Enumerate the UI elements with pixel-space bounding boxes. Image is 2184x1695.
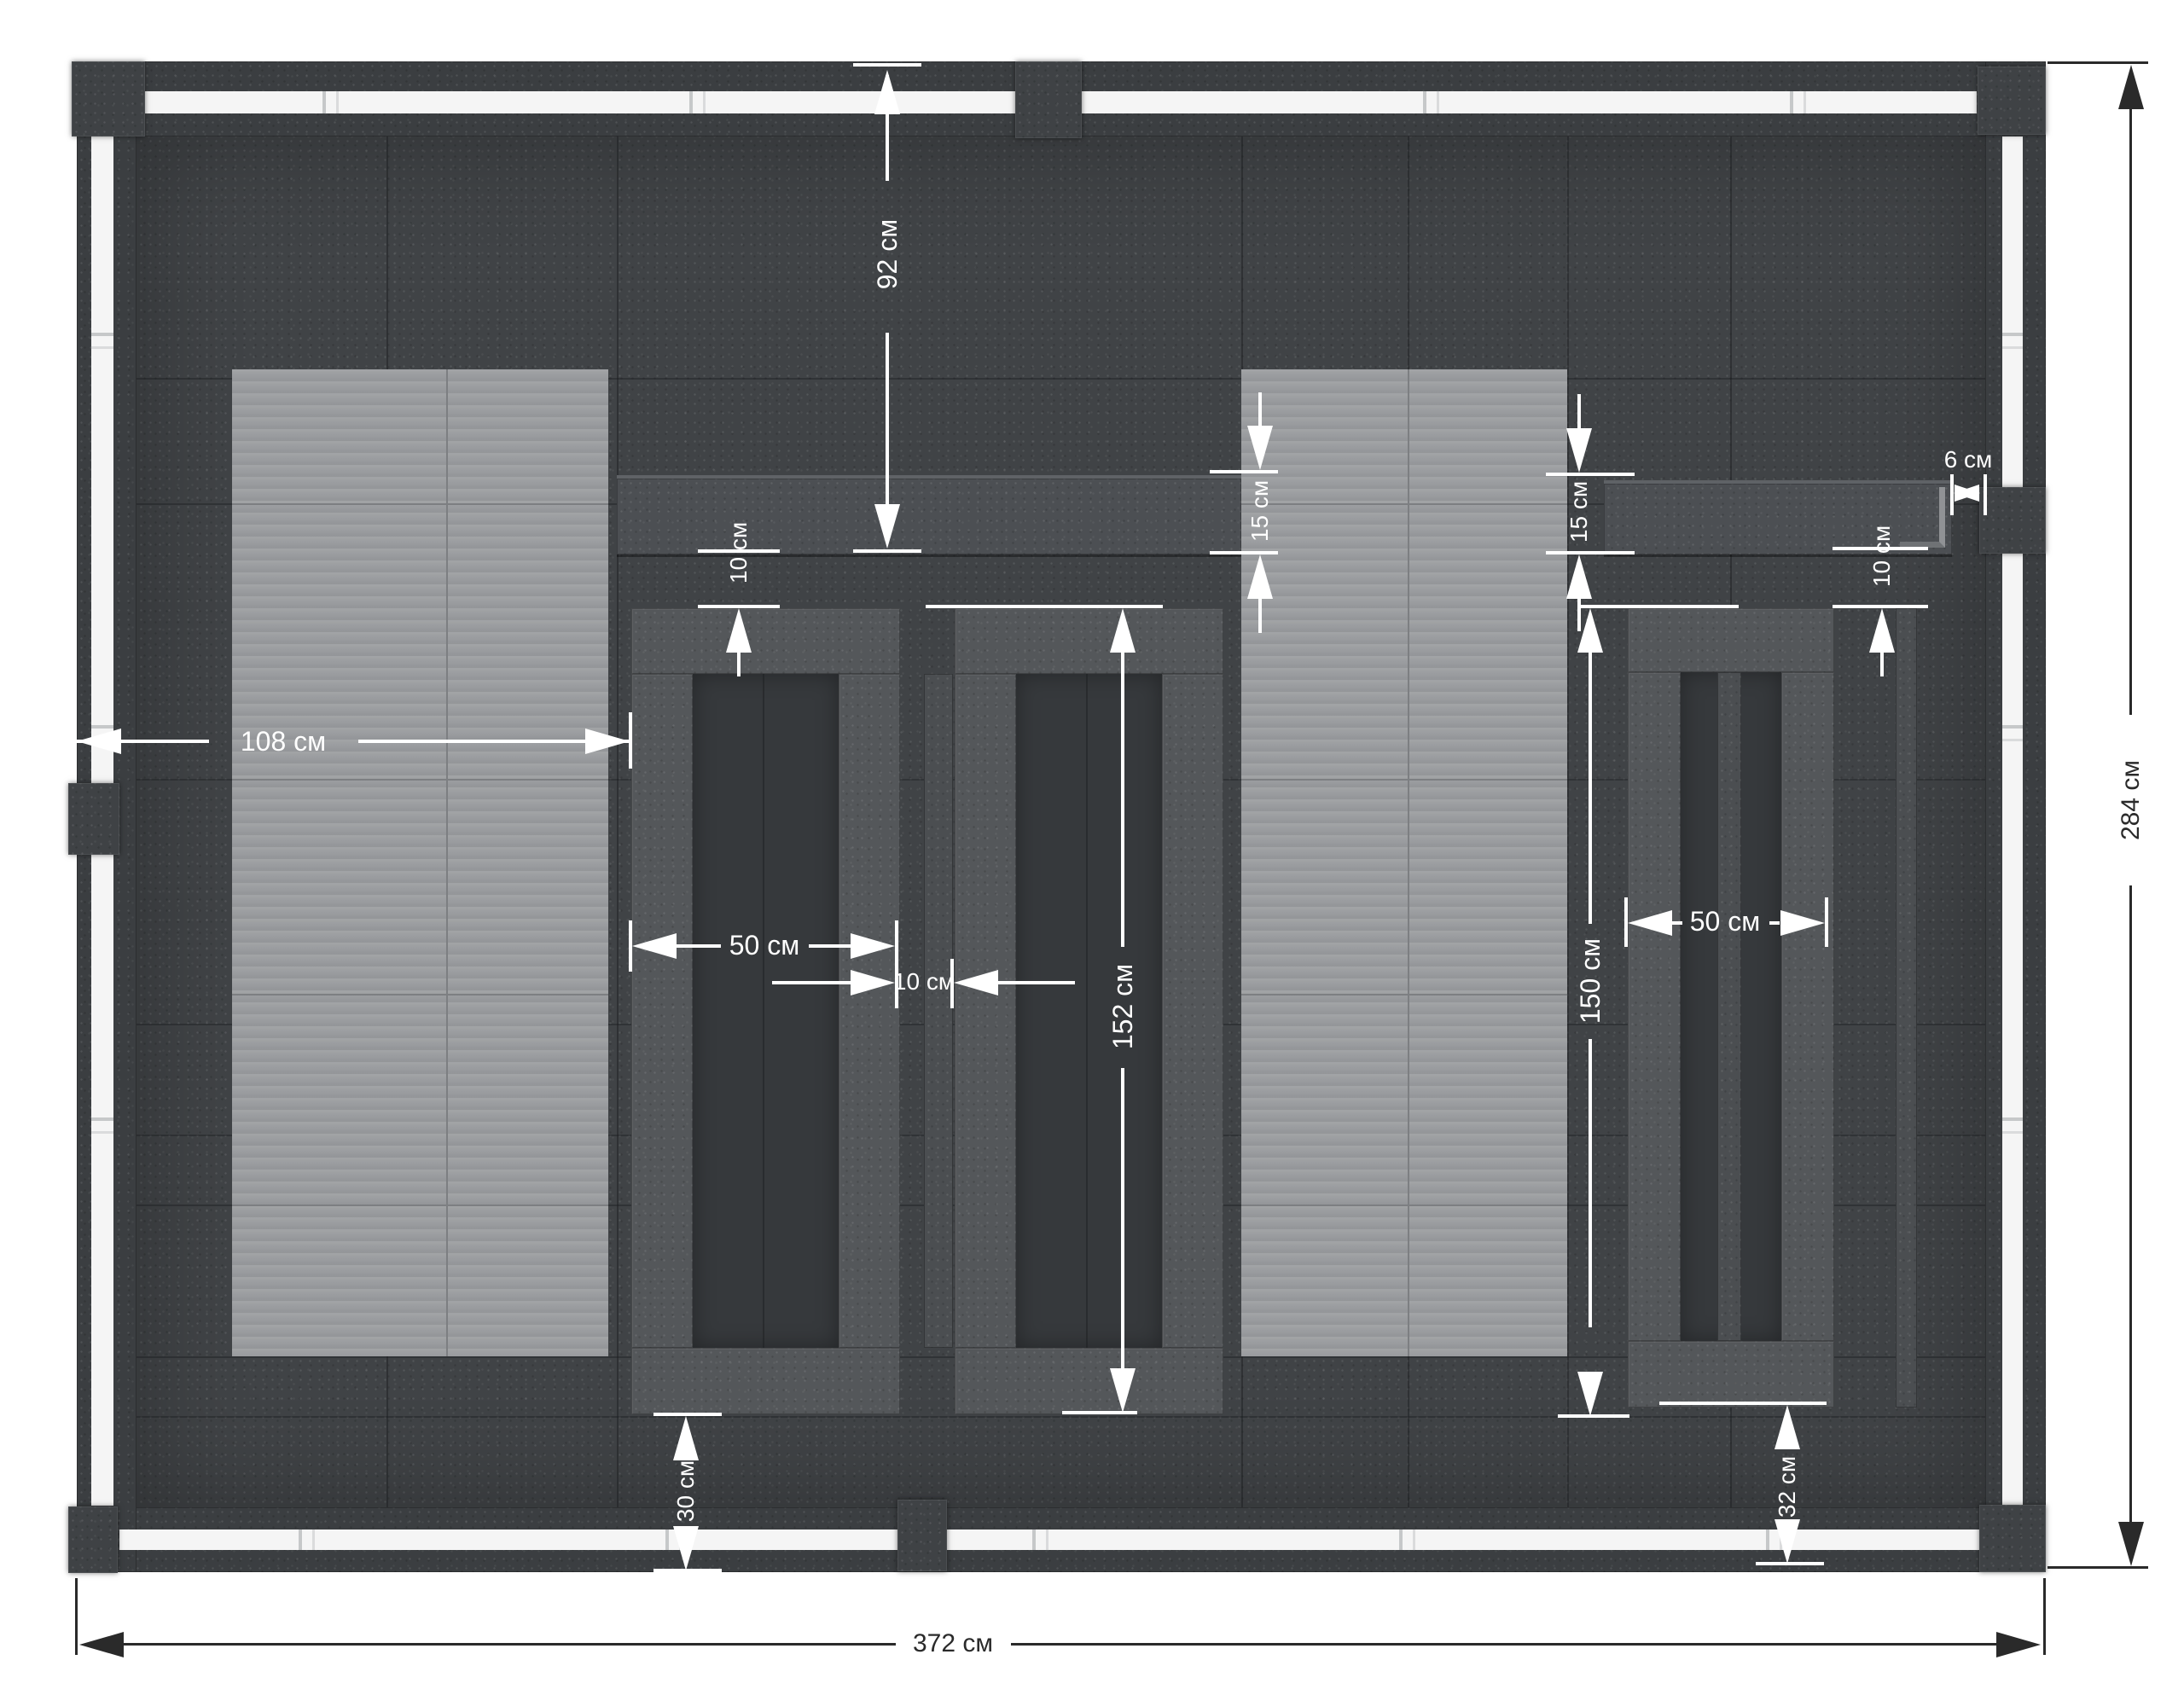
dim-arrow <box>632 933 677 959</box>
floor-seam <box>1567 136 1569 1507</box>
dim-arrow <box>1247 426 1273 470</box>
dim-bench-length-middle-line <box>1121 1068 1124 1368</box>
dim-overall-depth-label: 284 см <box>2118 760 2144 840</box>
dim-line <box>1258 392 1262 427</box>
bench-seam <box>1086 674 1088 1348</box>
dim-line <box>772 981 851 984</box>
bench-crossbar-top <box>631 608 900 674</box>
dim-line <box>1258 599 1262 633</box>
dim-tick <box>75 1578 78 1655</box>
wall-post-right-middle <box>1979 487 2046 554</box>
dim-bench-length-right-line <box>1589 653 1592 924</box>
dim-tick <box>2047 61 2148 64</box>
dim-beam-bench-gap-middle-label: 10 см <box>727 522 751 583</box>
bench-interior <box>693 674 839 1348</box>
dim-arrow <box>77 729 121 754</box>
light-panel-right <box>1241 369 1567 1356</box>
bench-frame-middle-right <box>955 608 1223 1414</box>
dim-arrow <box>2118 1522 2144 1566</box>
dim-line <box>1672 921 1682 925</box>
dim-beam-end-gap-label: 6 см <box>1944 448 1993 472</box>
bench-crossbar-bottom <box>1628 1341 1834 1408</box>
floor-seam <box>136 1416 1985 1418</box>
panel-seam <box>232 994 608 996</box>
dim-arrow <box>1774 1519 1800 1564</box>
bench-interior <box>1016 674 1162 1348</box>
dim-arrow <box>954 970 998 996</box>
panel-seam <box>232 779 608 781</box>
dim-overall-depth-line <box>2129 109 2132 715</box>
dim-bench-length-middle-line <box>1121 653 1124 947</box>
bench-rail-right <box>839 674 900 1348</box>
dim-arrow <box>726 608 752 653</box>
dim-arrow <box>874 70 900 114</box>
panel-seam <box>232 1204 608 1206</box>
dim-tick <box>1756 1562 1824 1565</box>
dim-arrow <box>2118 65 2144 109</box>
beam-end-highlight <box>1900 487 1945 548</box>
wall-post-top-left <box>72 61 145 136</box>
dim-line <box>1880 653 1884 676</box>
wall-post-bottom-left <box>68 1506 118 1573</box>
dim-arrow <box>1996 1632 2041 1657</box>
bench-rail-left <box>955 674 1016 1348</box>
dim-arrow <box>1110 608 1136 653</box>
dim-arrow <box>1780 910 1825 936</box>
bench-crossbar-top <box>1628 608 1834 672</box>
dim-bench-width-right-label: 50 см <box>1690 908 1760 935</box>
dim-beam-depth-right-label: 15 см <box>1567 481 1591 543</box>
panel-seam <box>446 369 448 1356</box>
dim-line <box>1577 394 1581 428</box>
door-track-right <box>2002 136 2023 1506</box>
panel-seam <box>1241 503 1567 505</box>
dim-tick <box>1210 470 1278 473</box>
dim-arrow <box>673 1526 699 1570</box>
dim-tick <box>629 712 632 769</box>
dim-bottom-clearance-left-label: 30 см <box>674 1460 698 1522</box>
dim-arrow <box>851 970 895 996</box>
dim-tick <box>1558 1414 1629 1418</box>
bench-rail-right <box>1781 672 1834 1341</box>
dim-line <box>1769 921 1780 925</box>
bench-crossbar-bottom <box>955 1348 1223 1414</box>
bench-mid-rail <box>1717 672 1741 1341</box>
panel-seam <box>1241 994 1567 996</box>
dim-tick <box>1984 474 1987 515</box>
dim-arrow <box>1566 428 1592 473</box>
wall-post-top-middle <box>1015 61 1082 138</box>
blueprint-canvas: 92 см 15 см 15 см 6 см 10 см 10 см 108 с… <box>0 0 2184 1695</box>
dim-arrow <box>1774 1405 1800 1449</box>
bench-rail-right <box>1162 674 1223 1348</box>
dim-arrow <box>1566 554 1592 599</box>
dim-arrow <box>79 1632 124 1657</box>
door-track-bottom <box>119 1530 1979 1550</box>
panel-seam <box>1408 369 1409 1356</box>
dim-left-bay-label: 108 см <box>241 728 326 755</box>
dim-arrow <box>1628 910 1672 936</box>
bench-rail-left <box>1628 672 1681 1341</box>
support-beam-right <box>1604 480 1952 554</box>
dim-arrow <box>585 729 630 754</box>
dim-line <box>737 653 741 676</box>
dim-arrow <box>1247 554 1273 599</box>
dim-arrow <box>1577 1372 1603 1416</box>
wall-post-bottom-right <box>1979 1505 2046 1572</box>
bench-crossbar-top <box>955 608 1223 674</box>
panel-seam <box>232 503 608 505</box>
wall-post-bottom-middle <box>897 1500 947 1571</box>
dim-tick <box>853 63 921 67</box>
dim-bench-gap-label: 10 см <box>893 970 955 994</box>
dim-tick <box>1659 1402 1827 1405</box>
dim-bench-length-middle-label: 152 см <box>1109 964 1136 1049</box>
bench-seam <box>763 674 764 1348</box>
dim-tick <box>1062 1411 1137 1414</box>
dim-beam-bench-gap-right-label: 10 см <box>1870 525 1894 587</box>
dim-overall-depth-line <box>2129 885 2132 1522</box>
dim-line <box>677 944 721 948</box>
panel-seam <box>1241 779 1567 781</box>
dim-bottom-clearance-right-label: 32 см <box>1775 1456 1799 1518</box>
dim-arrow <box>1110 1368 1136 1413</box>
dim-tick <box>853 549 921 553</box>
dim-tick <box>1546 473 1635 476</box>
dim-back-clearance-label: 92 см <box>874 219 901 289</box>
dim-arrow <box>874 504 900 549</box>
dim-beam-depth-middle-label: 15 см <box>1248 480 1272 542</box>
dim-bench-width-middle-label: 50 см <box>729 932 799 959</box>
light-panel-left <box>232 369 608 1356</box>
dim-overall-width-line <box>1011 1643 1996 1646</box>
dim-tick <box>1825 897 1828 947</box>
floor-strip-middle <box>924 674 953 1348</box>
dim-arrow <box>1869 608 1895 653</box>
dim-line <box>809 944 851 948</box>
dim-arrow <box>1955 485 1980 502</box>
bench-rail-left <box>631 674 693 1348</box>
dim-back-clearance-line <box>886 333 889 508</box>
dim-overall-width-line <box>124 1643 896 1646</box>
dim-line <box>996 981 1075 984</box>
dim-arrow <box>851 933 895 959</box>
dim-tick <box>2043 1578 2046 1655</box>
wall-post-top-right <box>1978 67 2046 135</box>
dim-tick <box>653 1569 722 1572</box>
panel-seam <box>1241 1204 1567 1206</box>
floor-seam <box>617 136 619 1507</box>
dim-arrow <box>1577 608 1603 653</box>
dim-tick <box>2047 1566 2148 1569</box>
wall-post-left-middle <box>68 783 119 855</box>
dim-arrow <box>673 1416 699 1460</box>
bench-crossbar-bottom <box>631 1348 900 1414</box>
dim-bench-length-right-label: 150 см <box>1577 938 1604 1024</box>
dim-bench-length-right-line <box>1589 1039 1592 1327</box>
bench-frame-right <box>1628 608 1834 1408</box>
bench-frame-middle-left <box>631 608 900 1414</box>
dim-overall-width-label: 372 см <box>913 1631 993 1657</box>
support-beam-middle <box>617 475 1241 554</box>
floor-strip-right <box>1896 608 1917 1408</box>
